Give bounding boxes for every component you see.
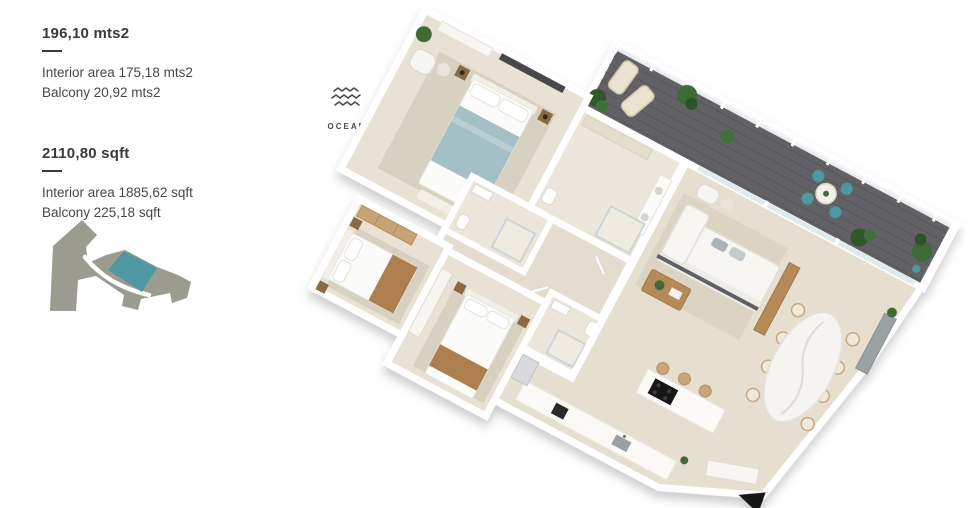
apartment-3d-floorplan xyxy=(0,0,980,508)
floorplan-page: 196,10 mts2 Interior area 175,18 mts2 Ba… xyxy=(0,0,980,508)
